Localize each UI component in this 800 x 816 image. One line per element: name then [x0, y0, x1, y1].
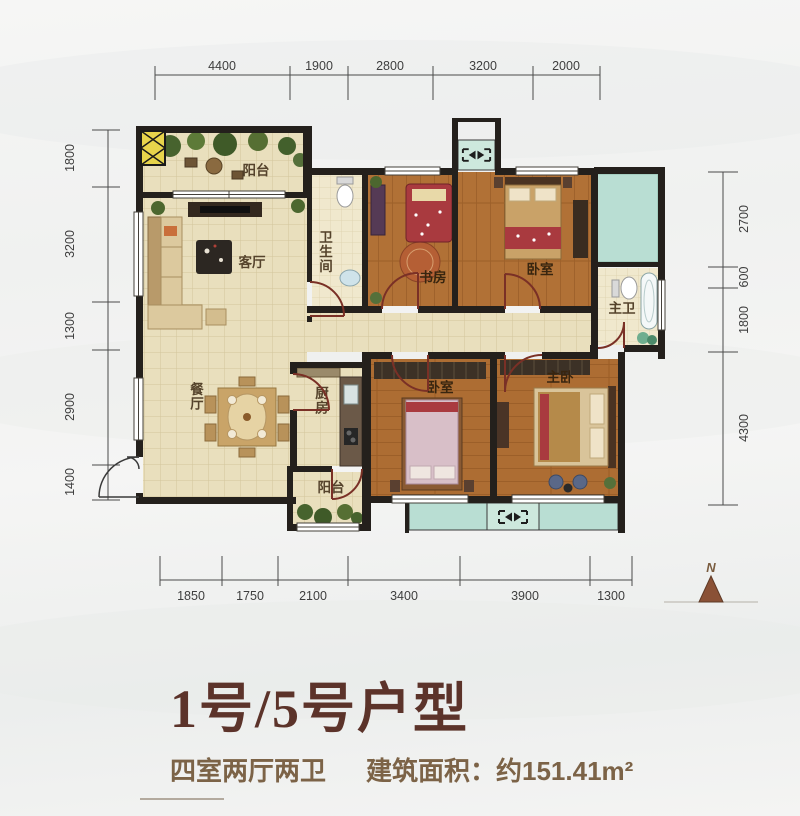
ac-shaft-top — [458, 140, 495, 170]
dim-top-2: 1900 — [305, 59, 333, 73]
dim-top-5: 2000 — [552, 59, 580, 73]
label-bedroom-top: 卧室 — [527, 261, 555, 277]
dim-left-3: 1300 — [63, 312, 77, 340]
corridor-floor — [307, 313, 598, 352]
dim-bottom-6: 1300 — [597, 589, 625, 603]
dimension-chain-left: 1800 3200 1300 2900 1400 — [63, 130, 120, 500]
dimension-chain-bottom: 1850 1750 2100 3400 3900 1300 — [160, 556, 632, 603]
window-dining-west — [134, 378, 143, 440]
compass-north-label: N — [706, 560, 716, 575]
label-study: 书房 — [420, 269, 447, 285]
title-block: 1号/5号户型 四室两厅两卫 建筑面积：约151.41m² — [170, 680, 633, 788]
window-master-south — [512, 495, 604, 503]
label-master-bedroom: 主卧 — [547, 369, 575, 385]
dim-bottom-4: 3400 — [390, 589, 418, 603]
ac-ledge-left — [409, 503, 487, 530]
dim-top-1: 4400 — [208, 59, 236, 73]
dim-right-3: 1800 — [737, 306, 751, 334]
title-underline — [140, 798, 224, 800]
ac-ledge-right — [539, 503, 618, 530]
window-bedroom-top-north — [516, 167, 578, 175]
dim-bottom-5: 3900 — [511, 589, 539, 603]
flue-shaft-yellow — [141, 131, 165, 165]
dimension-chain-top: 4400 1900 2800 3200 2000 — [155, 59, 600, 100]
compass: N — [664, 560, 758, 602]
floorplan-page: 4400 1900 2800 3200 2000 1800 3200 1300 … — [0, 0, 800, 816]
dim-top-4: 3200 — [469, 59, 497, 73]
label-bathroom: 卫生间 — [319, 230, 333, 274]
label-living: 客厅 — [238, 254, 266, 270]
label-dining: 餐厅 — [189, 381, 204, 412]
balcony-right-floor — [594, 174, 658, 262]
window-kitchen-balcony-south — [297, 523, 359, 531]
dim-bottom-3: 2100 — [299, 589, 327, 603]
dim-left-1: 1800 — [63, 144, 77, 172]
dim-right-1: 2700 — [737, 205, 751, 233]
dim-left-2: 3200 — [63, 230, 77, 258]
sliding-door-balcony-living — [173, 191, 285, 198]
compass-needle — [699, 576, 723, 602]
label-master-bath: 主卫 — [609, 300, 637, 316]
dim-right-4: 4300 — [737, 414, 751, 442]
dim-left-5: 1400 — [63, 468, 77, 496]
unit-area: 建筑面积：约151.41m² — [366, 751, 633, 788]
dimension-chain-right: 2700 600 1800 4300 — [708, 172, 751, 505]
label-balcony-top: 阳台 — [243, 162, 270, 178]
unit-title: 1号/5号户型 — [170, 680, 633, 739]
dim-top-3: 2800 — [376, 59, 404, 73]
window-master-bath-east — [658, 280, 665, 330]
entry-door — [99, 457, 139, 497]
dim-left-4: 2900 — [63, 393, 77, 421]
window-bedroom-bottom-south — [392, 495, 468, 503]
dim-bottom-2: 1750 — [236, 589, 264, 603]
unit-spec: 四室两厅两卫 — [170, 751, 326, 788]
label-bedroom-bottom: 卧室 — [427, 379, 454, 395]
window-living-west — [134, 212, 143, 296]
window-study-north — [385, 167, 440, 175]
ac-ledge-mid — [487, 503, 539, 530]
dim-bottom-1: 1850 — [177, 589, 205, 603]
dim-right-2: 600 — [737, 267, 751, 288]
